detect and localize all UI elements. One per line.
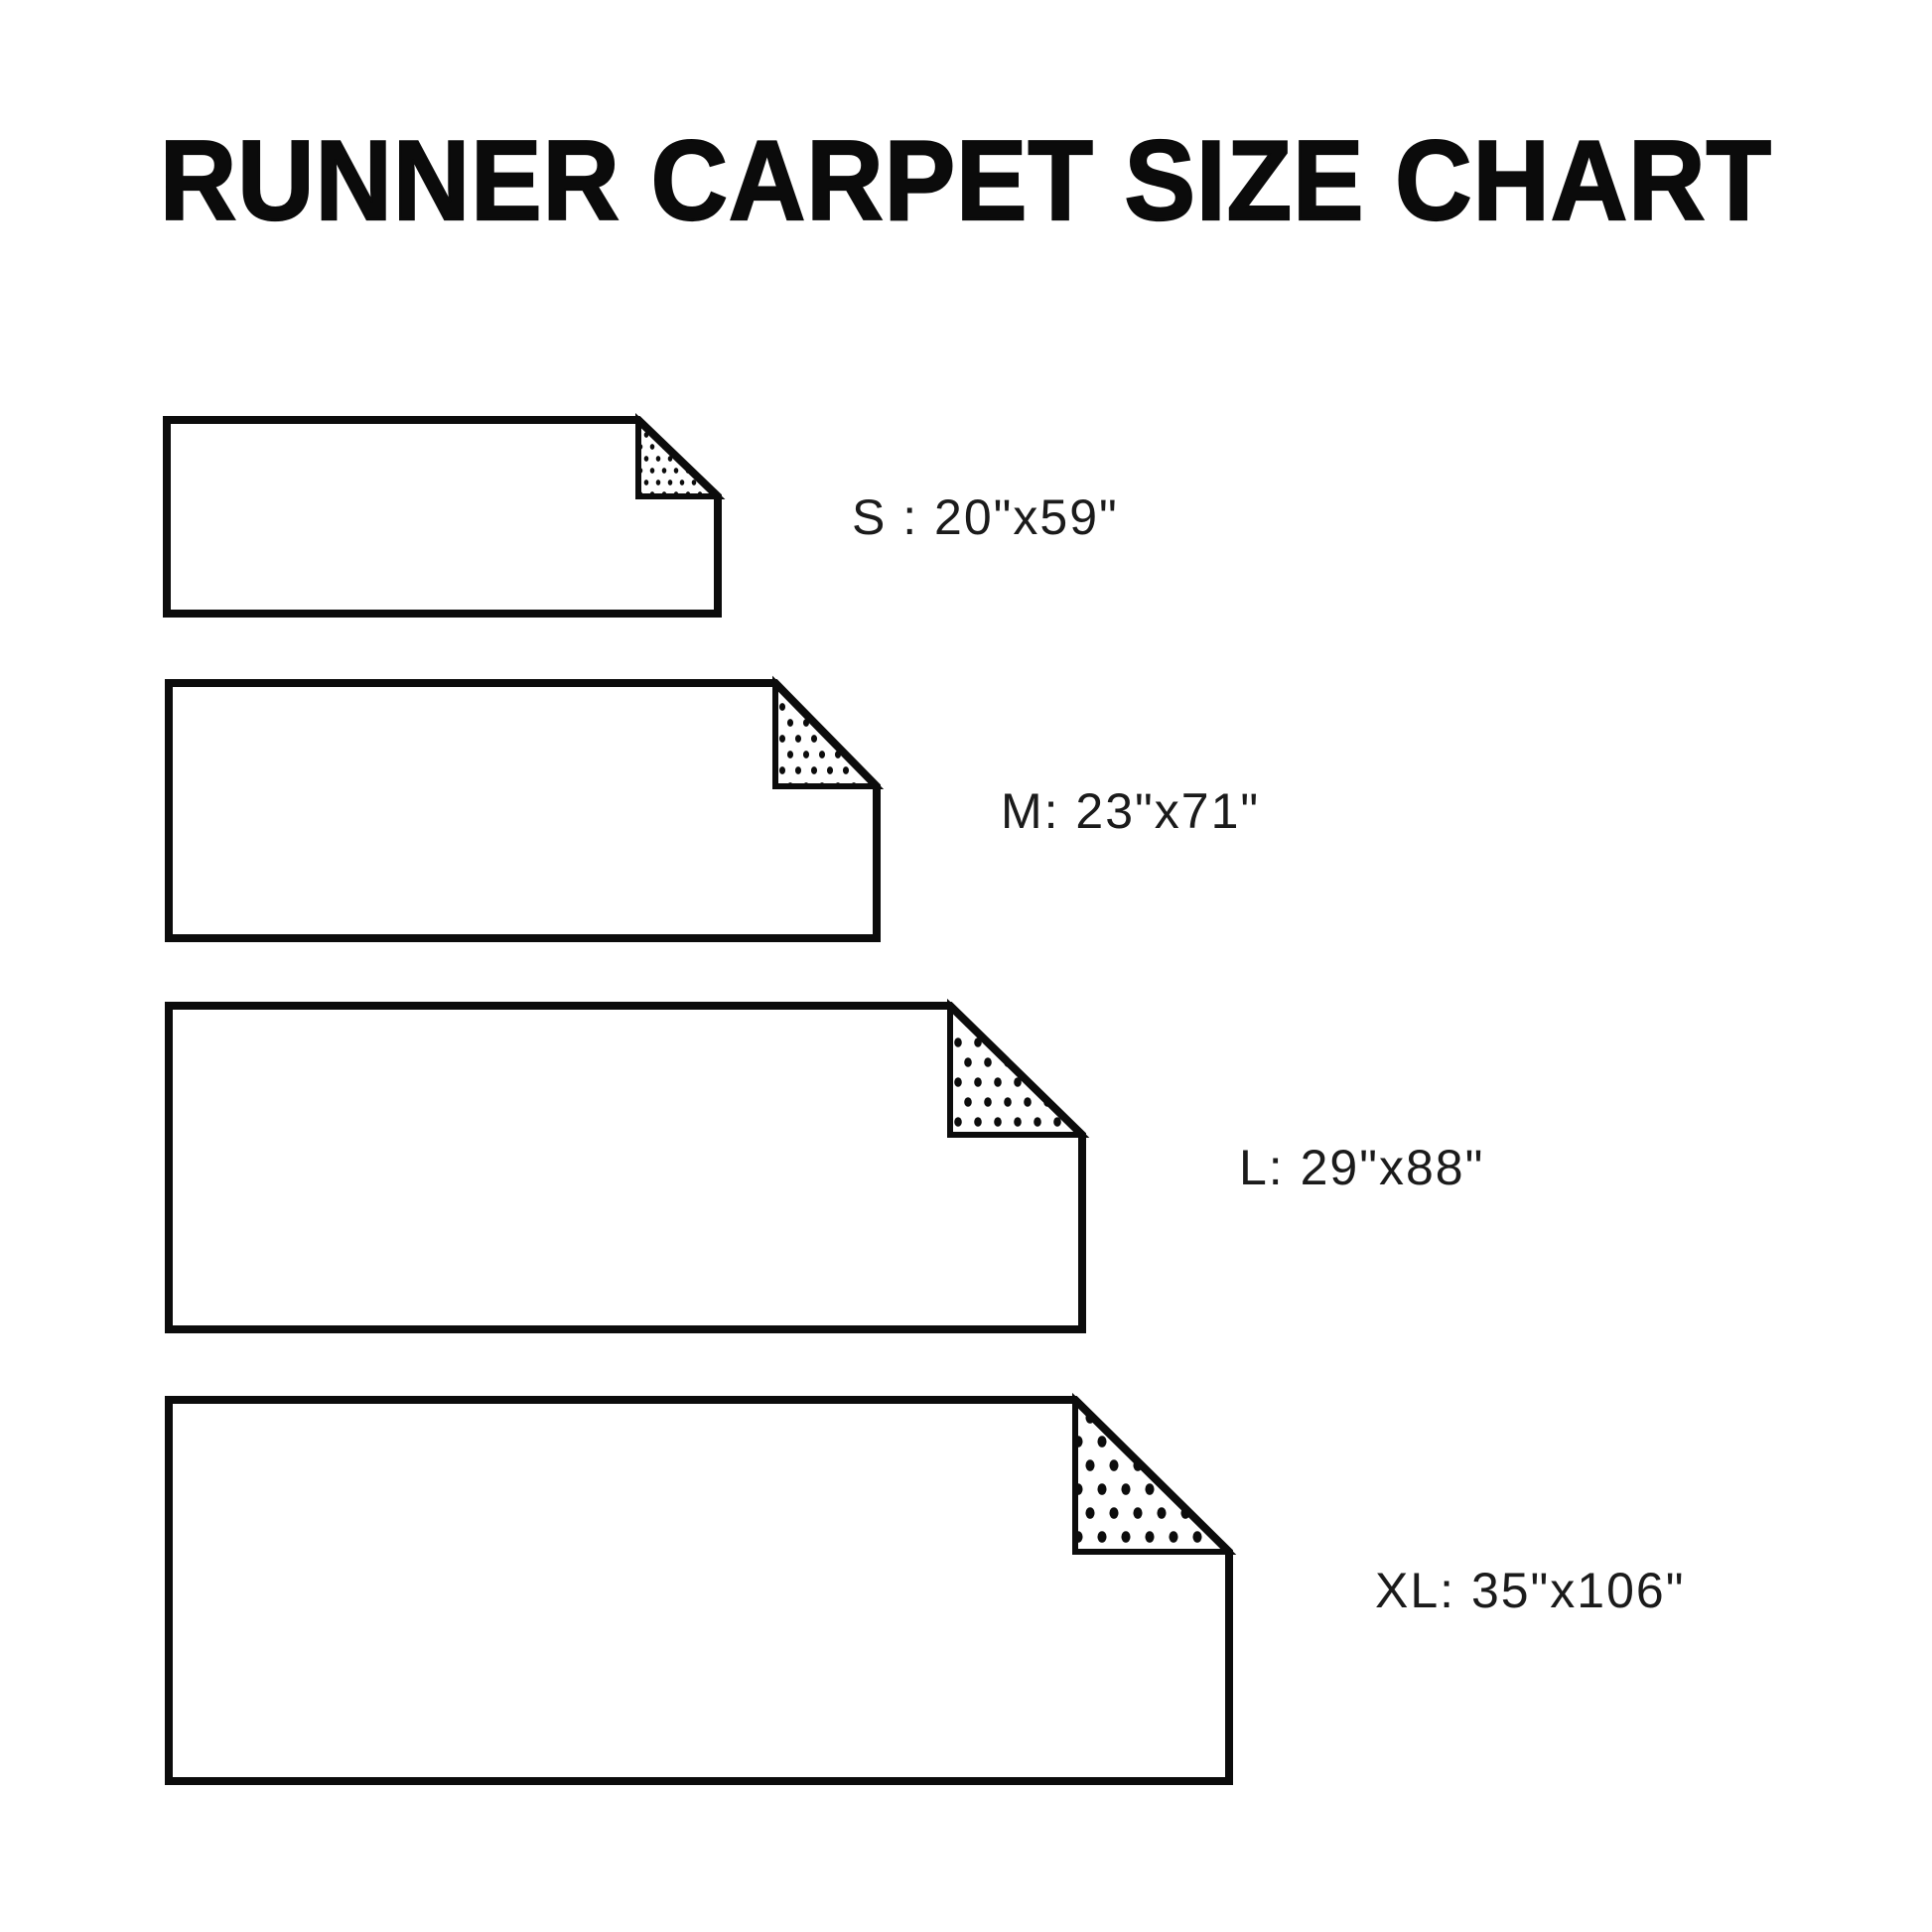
carpet-rect-l — [169, 1006, 1082, 1329]
fold-corner-m — [775, 683, 877, 786]
carpet-rect-m — [169, 683, 877, 938]
carpet-shapes-figure — [0, 0, 1932, 1932]
carpet-rect-s — [167, 420, 718, 614]
fold-corner-xl — [1075, 1400, 1229, 1552]
carpet-rect-xl — [169, 1400, 1229, 1781]
size-label-s: S : 20"x59" — [852, 487, 1119, 547]
fold-corner-l — [950, 1006, 1082, 1135]
size-label-l: L: 29"x88" — [1239, 1138, 1484, 1197]
size-label-xl: XL: 35"x106" — [1375, 1561, 1685, 1620]
size-label-m: M: 23"x71" — [1001, 781, 1260, 841]
fold-corner-s — [638, 420, 718, 496]
